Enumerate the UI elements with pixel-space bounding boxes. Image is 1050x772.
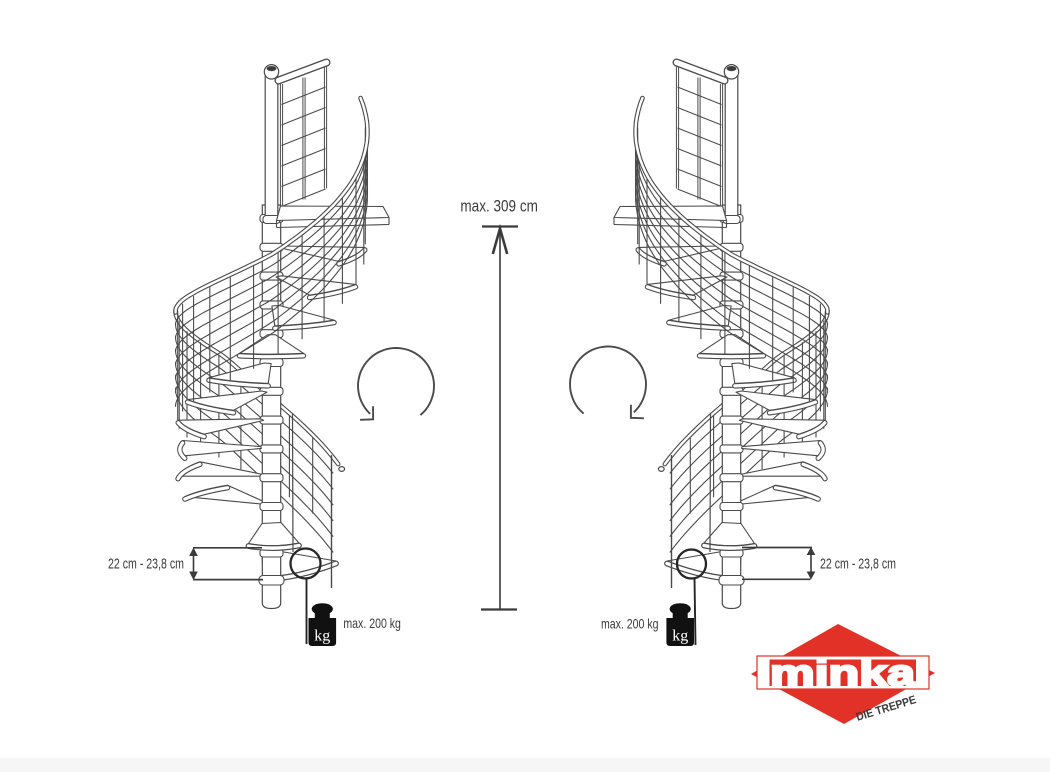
svg-text:max. 200 kg: max. 200 kg xyxy=(601,616,659,632)
svg-text:kg: kg xyxy=(314,628,330,645)
svg-text:22 cm - 23,8 cm: 22 cm - 23,8 cm xyxy=(820,557,896,573)
svg-text:max. 200 kg: max. 200 kg xyxy=(343,615,401,631)
svg-text:max. 309 cm: max. 309 cm xyxy=(460,198,538,216)
svg-text:minka: minka xyxy=(770,653,916,694)
svg-text:kg: kg xyxy=(672,628,688,645)
svg-text:22 cm - 23,8 cm: 22 cm - 23,8 cm xyxy=(108,557,184,573)
